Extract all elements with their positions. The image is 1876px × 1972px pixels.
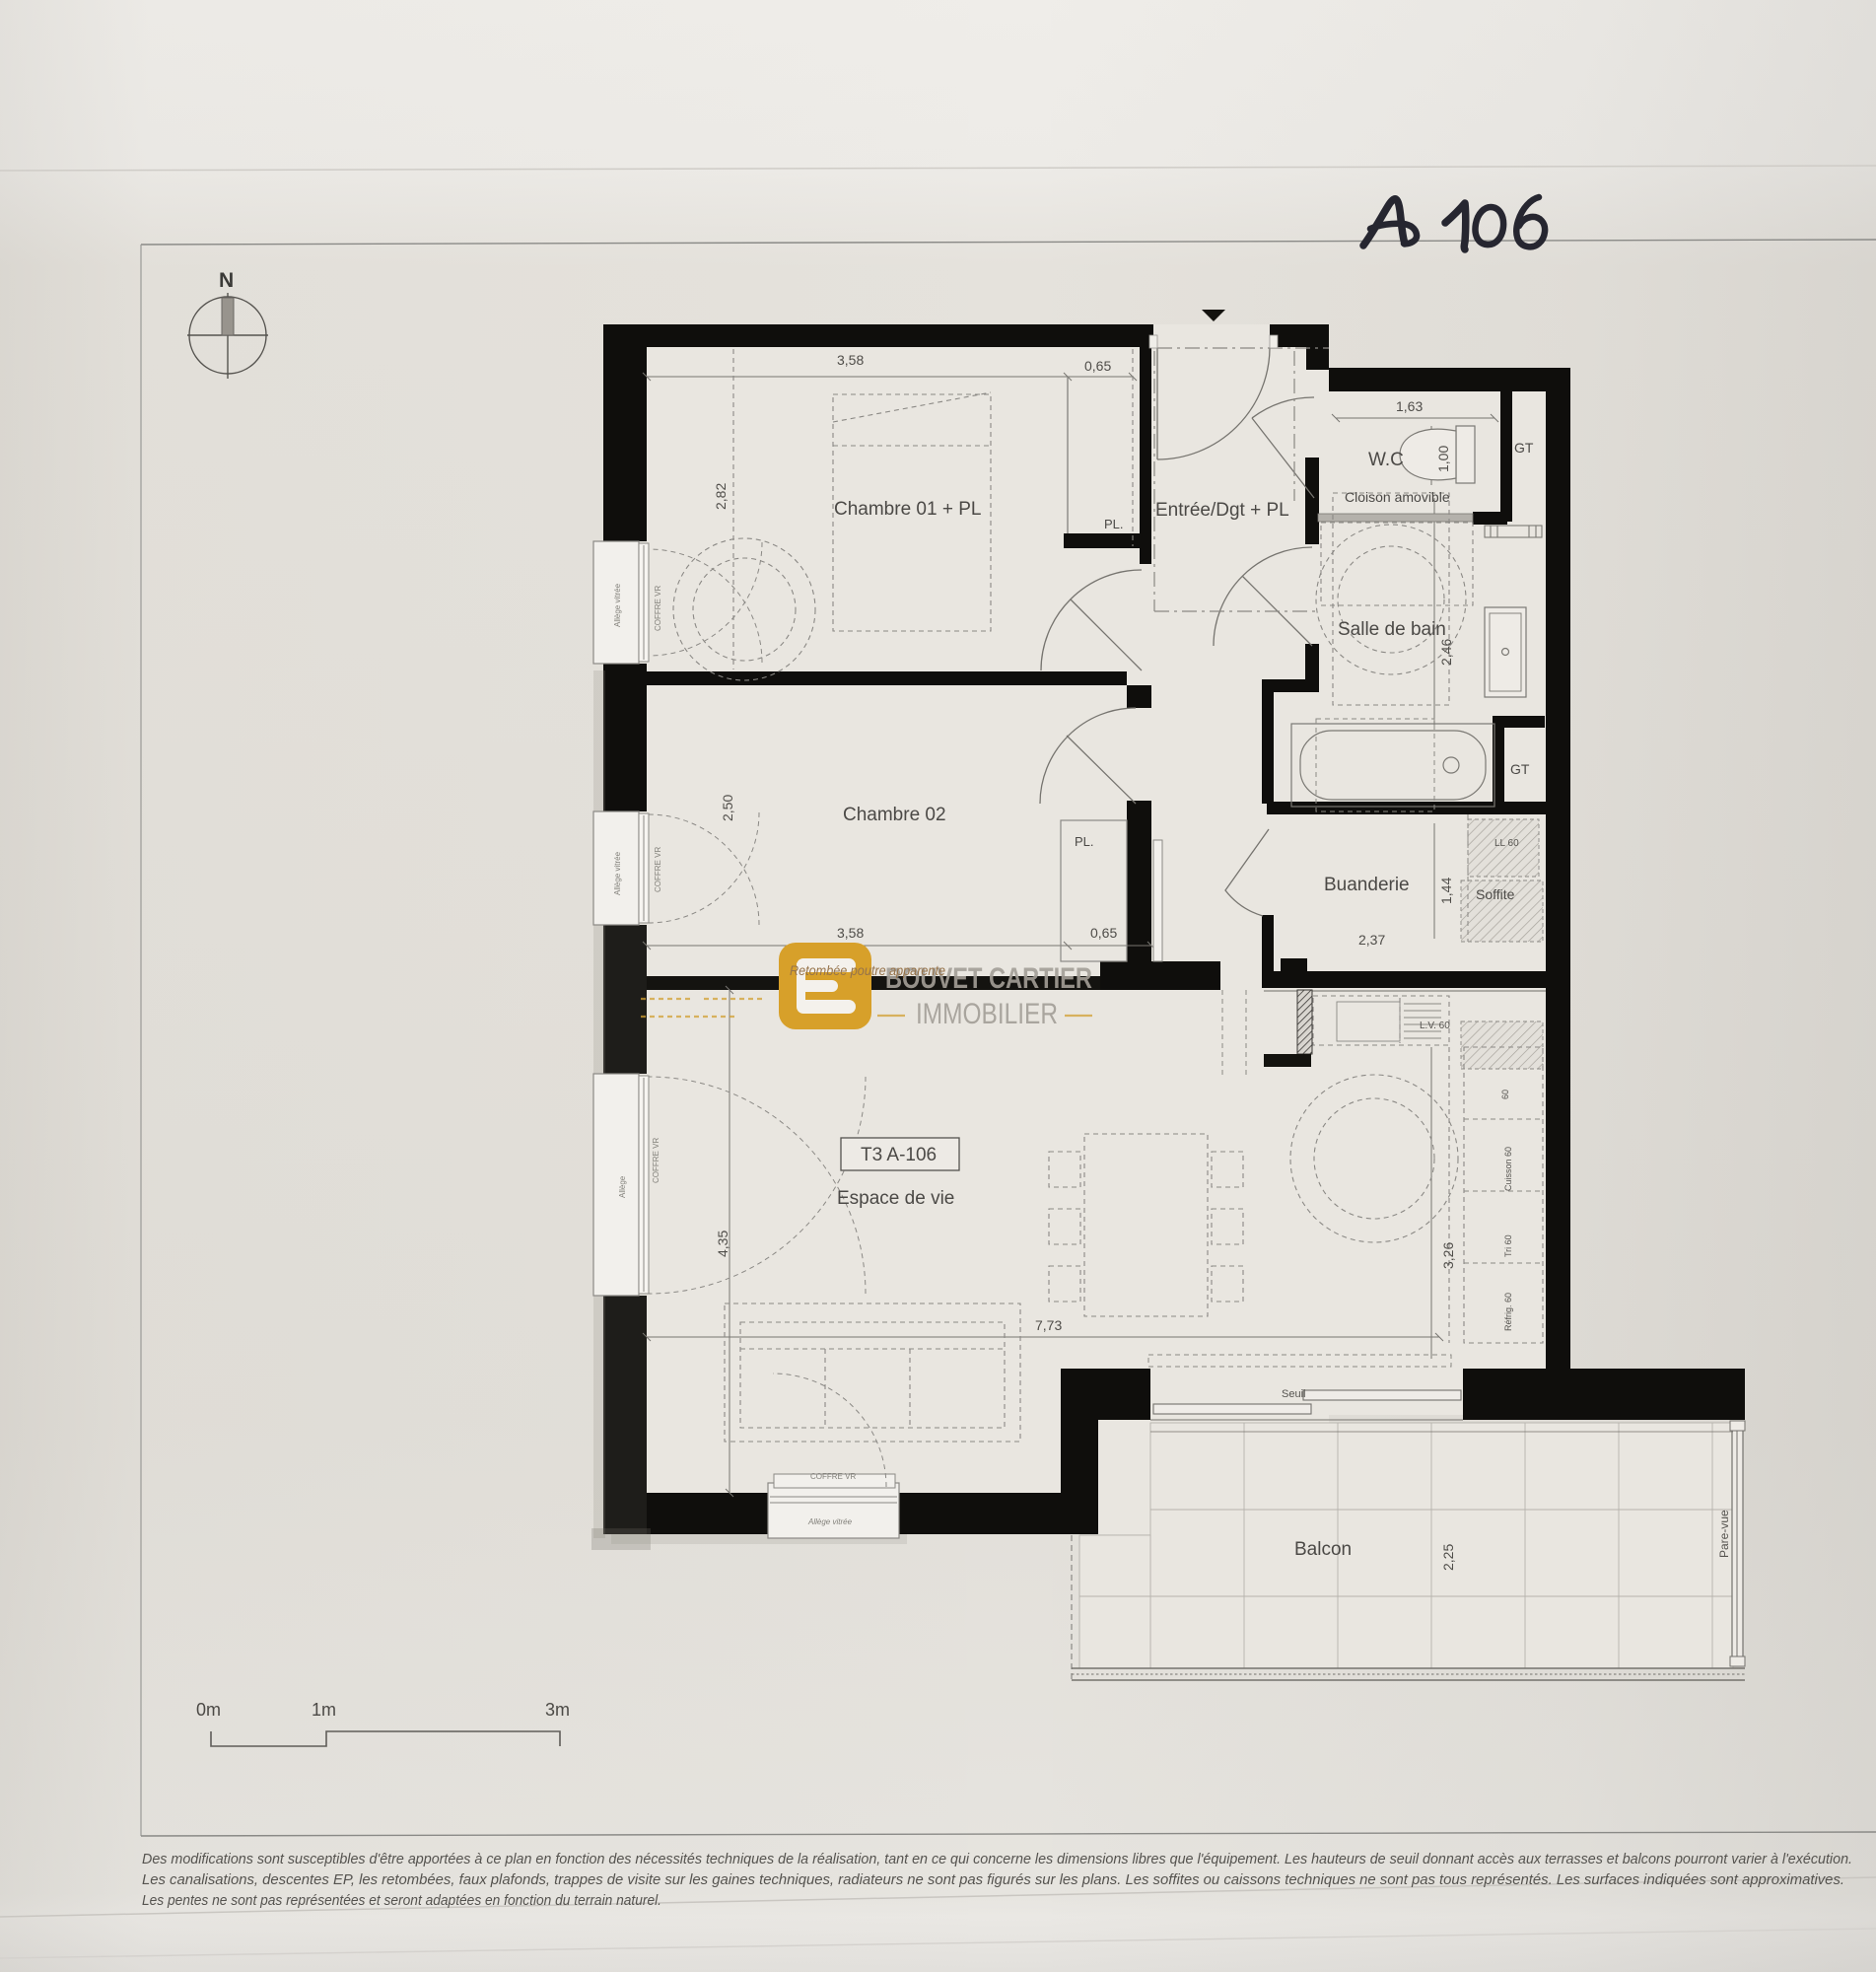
svg-text:3,58: 3,58: [837, 925, 864, 941]
svg-text:0m: 0m: [196, 1700, 221, 1720]
svg-text:GT: GT: [1514, 440, 1534, 456]
svg-text:0,65: 0,65: [1090, 925, 1117, 941]
svg-text:Allège: Allège: [618, 1175, 627, 1198]
svg-text:COFFRE VR: COFFRE VR: [652, 1138, 660, 1183]
svg-text:Salle de bain: Salle de bain: [1338, 619, 1446, 640]
svg-text:N: N: [219, 269, 234, 292]
svg-text:2,50: 2,50: [720, 795, 735, 821]
svg-text:Chambre 01 + PL: Chambre 01 + PL: [834, 499, 981, 520]
svg-text:Retombée poutre apparente: Retombée poutre apparente: [790, 963, 945, 978]
svg-text:Espace de vie: Espace de vie: [837, 1188, 954, 1209]
svg-text:Entrée/Dgt + PL: Entrée/Dgt + PL: [1155, 500, 1289, 521]
svg-text:GT: GT: [1510, 761, 1530, 777]
svg-text:Cloison amovible: Cloison amovible: [1345, 489, 1450, 505]
svg-text:Buanderie: Buanderie: [1324, 875, 1410, 895]
svg-text:1,44: 1,44: [1438, 878, 1454, 904]
svg-text:3,26: 3,26: [1440, 1242, 1456, 1269]
svg-text:LL 60: LL 60: [1494, 838, 1519, 849]
svg-text:COFFRE VR: COFFRE VR: [654, 586, 662, 631]
svg-text:2,46: 2,46: [1438, 639, 1454, 666]
svg-text:Cuisson 60: Cuisson 60: [1503, 1147, 1513, 1191]
svg-text:COFFRE VR: COFFRE VR: [810, 1472, 856, 1481]
svg-text:Des modifications sont suscept: Des modifications sont susceptibles d'êt…: [142, 1852, 1852, 1867]
svg-text:0,65: 0,65: [1084, 358, 1111, 374]
svg-text:60: 60: [1500, 1090, 1510, 1099]
svg-text:Tri 60: Tri 60: [1503, 1234, 1513, 1257]
svg-text:PL.: PL.: [1075, 834, 1094, 849]
svg-text:1m: 1m: [312, 1700, 336, 1720]
svg-text:Pare-vue: Pare-vue: [1717, 1510, 1731, 1558]
svg-text:1,00: 1,00: [1435, 446, 1451, 472]
svg-text:Allège vitrée: Allège vitrée: [613, 583, 622, 627]
svg-text:IMMOBILIER: IMMOBILIER: [916, 998, 1058, 1030]
svg-text:7,73: 7,73: [1035, 1317, 1062, 1333]
svg-text:2,25: 2,25: [1440, 1544, 1456, 1571]
svg-text:Les canalisations, descentes E: Les canalisations, descentes EP, les ret…: [142, 1872, 1844, 1888]
svg-text:T3 A-106: T3 A-106: [861, 1145, 937, 1165]
svg-text:4,35: 4,35: [715, 1231, 730, 1257]
svg-text:3m: 3m: [545, 1700, 570, 1720]
svg-text:COFFRE VR: COFFRE VR: [654, 847, 662, 892]
svg-text:PL.: PL.: [1104, 517, 1124, 531]
svg-text:Seuil: Seuil: [1282, 1388, 1305, 1400]
svg-text:Chambre 02: Chambre 02: [843, 805, 946, 825]
svg-text:1,63: 1,63: [1396, 398, 1423, 414]
svg-text:W.C: W.C: [1368, 450, 1404, 470]
svg-text:L.V. 60: L.V. 60: [1420, 1021, 1450, 1031]
svg-text:2,82: 2,82: [713, 483, 729, 510]
svg-text:Réfrig. 60: Réfrig. 60: [1503, 1293, 1513, 1331]
svg-text:2,37: 2,37: [1358, 932, 1385, 948]
svg-text:Balcon: Balcon: [1294, 1539, 1352, 1560]
svg-text:Les pentes ne sont pas représe: Les pentes ne sont pas représentées et s…: [142, 1893, 661, 1909]
svg-text:Allège vitrée: Allège vitrée: [807, 1517, 853, 1526]
svg-text:Allège vitrée: Allège vitrée: [613, 851, 622, 895]
svg-text:3,58: 3,58: [837, 352, 864, 368]
svg-text:Soffite: Soffite: [1476, 886, 1515, 902]
